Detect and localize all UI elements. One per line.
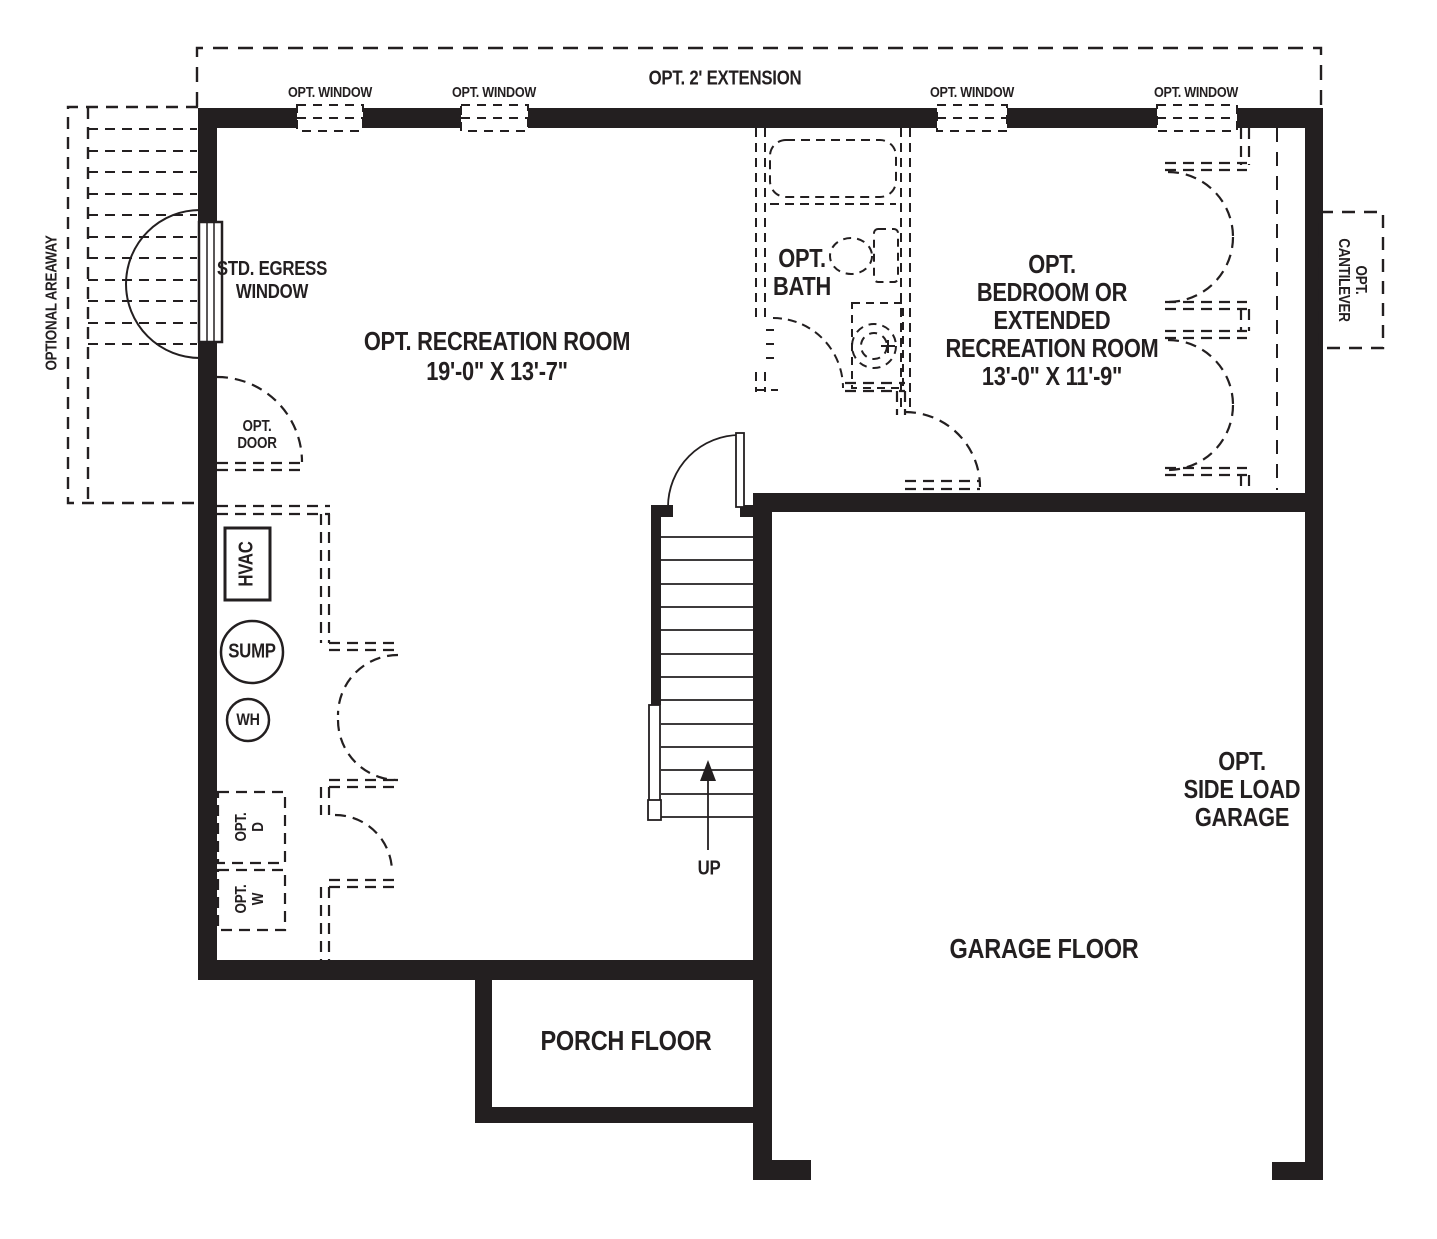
porch-floor-label: PORCH FLOOR	[540, 1026, 711, 1056]
side-load-garage-label: OPT. SIDE LOAD GARAGE	[1184, 747, 1301, 831]
bath-label-line1: OPT.	[773, 244, 831, 272]
bedroom-label-line1: OPT.	[945, 250, 1158, 278]
opt-washer-label-line2: W	[250, 885, 267, 914]
sink-icon	[852, 303, 903, 388]
recreation-room-label: OPT. RECREATION ROOM 19'-0" X 13'-7"	[364, 326, 630, 386]
opt-dryer-label-line2: D	[250, 813, 267, 842]
bath-label-line2: BATH	[773, 272, 831, 300]
opt-door-label-line1: OPT.	[237, 418, 276, 435]
side-load-garage-line3: GARAGE	[1184, 803, 1301, 831]
egress-window-label-line2: WINDOW	[217, 281, 327, 304]
opt-washer-label: OPT. W	[233, 885, 267, 914]
toilet-icon	[830, 229, 898, 282]
up-label: UP	[698, 858, 721, 881]
opt-door-label: OPT. DOOR	[237, 418, 276, 452]
bedroom-door-swing	[845, 383, 980, 489]
bathtub-icon	[770, 140, 896, 204]
closet-doors	[1165, 128, 1277, 493]
areaway-outline	[68, 107, 198, 503]
garage-floor-label: GARAGE FLOOR	[949, 934, 1138, 964]
opt-door-label-line2: DOOR	[237, 435, 276, 452]
window-label-2: OPT. WINDOW	[452, 85, 536, 101]
cantilever-label-line2: CANTILEVER	[1335, 238, 1352, 321]
stair-door-swing	[668, 433, 744, 507]
bedroom-label-line3: EXTENDED	[945, 306, 1158, 334]
window-label-4: OPT. WINDOW	[1154, 85, 1238, 101]
sump-label: SUMP	[228, 641, 276, 664]
water-heater-label: WH	[236, 711, 259, 729]
side-load-garage-line1: OPT.	[1184, 747, 1301, 775]
egress-window-label: STD. EGRESS WINDOW	[217, 258, 327, 304]
areaway-label: OPTIONAL AREAWAY	[44, 235, 61, 370]
recreation-room-dimensions: 19'-0" X 13'-7"	[364, 356, 630, 386]
opt-washer-label-line1: OPT.	[233, 885, 250, 914]
side-load-garage-line2: SIDE LOAD	[1184, 775, 1301, 803]
egress-window-swing	[126, 210, 200, 358]
bedroom-label: OPT. BEDROOM OR EXTENDED RECREATION ROOM…	[945, 250, 1158, 390]
extension-label: OPT. 2' EXTENSION	[649, 68, 802, 91]
window-label-1: OPT. WINDOW	[288, 85, 372, 101]
egress-window-label-line1: STD. EGRESS	[217, 258, 327, 281]
window-label-3: OPT. WINDOW	[930, 85, 1014, 101]
opt-dryer-label: OPT. D	[233, 813, 267, 842]
cantilever-label: OPT. CANTILEVER	[1335, 238, 1369, 321]
floor-plan: OPT. 2' EXTENSION OPT. WINDOW OPT. WINDO…	[0, 0, 1437, 1239]
opt-dryer-label-line1: OPT.	[233, 813, 250, 842]
recreation-room-name: OPT. RECREATION ROOM	[364, 326, 630, 356]
bedroom-label-line2: BEDROOM OR	[945, 278, 1158, 306]
bath-label: OPT. BATH	[773, 244, 831, 300]
bedroom-label-dimensions: 13'-0" X 11'-9"	[945, 362, 1158, 390]
stair-railing	[648, 705, 661, 820]
hvac-label: HVAC	[236, 541, 259, 586]
cantilever-label-line1: OPT.	[1352, 238, 1369, 321]
floorplan-linework	[0, 0, 1437, 1239]
bedroom-label-line4: RECREATION ROOM	[945, 334, 1158, 362]
up-arrow	[700, 760, 716, 850]
